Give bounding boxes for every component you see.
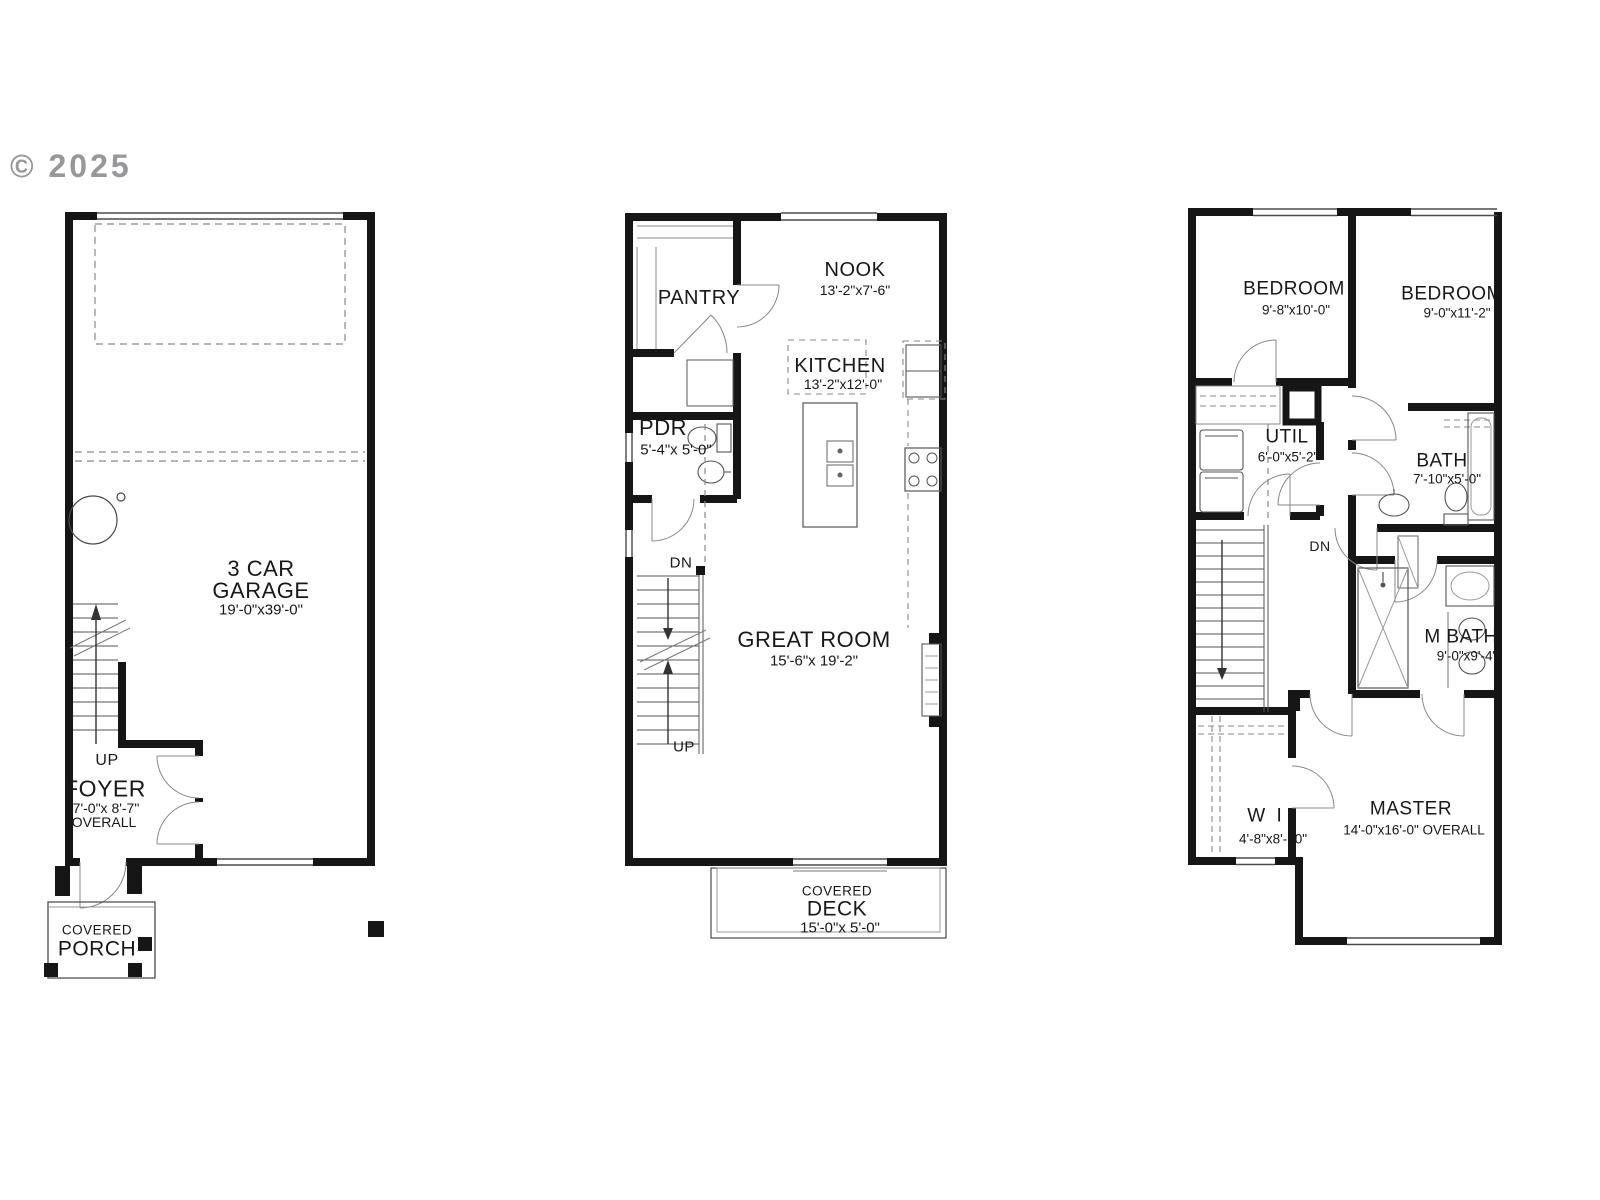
fireplace <box>922 633 945 727</box>
garage-door-header <box>97 213 343 865</box>
room-label-master: MASTER <box>1370 800 1452 819</box>
room-dims-mbath: 9'-0"x9'-4" <box>1437 649 1498 663</box>
deck-post <box>368 921 384 937</box>
stairs-dn-label-upper: DN <box>1309 539 1330 553</box>
room-label-kitchen: KITCHEN <box>794 356 885 376</box>
room-dims-bedroom1: 9'-8"x10'-0" <box>1262 303 1330 317</box>
room-label-garage-line2: GARAGE <box>212 580 309 602</box>
stairs-up-label-main: UP <box>673 740 695 755</box>
copyright-watermark: © 2025 <box>10 150 132 182</box>
room-label-bedroom1: BEDROOM <box>1243 280 1345 299</box>
room-label-porch-line1: COVERED <box>62 923 132 937</box>
room-dims-util: 6'-0"x5'-2" <box>1258 450 1319 464</box>
stairs-down <box>1196 424 1268 712</box>
room-label-bath: BATH <box>1416 452 1467 471</box>
room-label-nook: NOOK <box>825 260 886 280</box>
closet-cabinet <box>687 360 733 406</box>
main-outer-walls <box>629 217 943 862</box>
room-label-great-room: GREAT ROOM <box>737 629 890 651</box>
floor-plan-sheet: { "copyright": "© 2025", "floor1": { "ga… <box>0 0 1600 1200</box>
room-label-deck-line1: COVERED <box>802 884 872 898</box>
room-dims-foyer: 7'-0"x 8'-7" <box>73 801 140 815</box>
room-dims-deck: 15'-0"x 5'-0" <box>800 921 880 936</box>
room-label-util: UTIL <box>1265 428 1308 447</box>
stairs-up-label: UP <box>95 753 118 769</box>
room-label-pantry: PANTRY <box>658 288 740 308</box>
room-label-wi: W I <box>1247 807 1285 826</box>
stairs-dn-label-main: DN <box>670 556 693 571</box>
room-dims-wi: 4'-8"x8'-10" <box>1239 832 1307 846</box>
room-dims-foyer-overall: OVERALL <box>72 815 137 829</box>
garage-dashed-details <box>75 224 365 461</box>
room-label-porch-line2: PORCH <box>58 939 136 960</box>
linen-chase <box>1286 388 1318 422</box>
porch-post <box>128 963 142 977</box>
porch-post <box>138 937 152 951</box>
room-dims-bedroom2: 9'-0"x11'-2" <box>1423 306 1490 320</box>
room-dims-kitchen: 13'-2"x12'-0" <box>804 377 882 391</box>
room-dims-nook: 13'-2"x7'-6" <box>820 283 891 297</box>
room-label-pdr: PDR <box>639 417 687 439</box>
room-dims-master: 14'-0"x16'-0" OVERALL <box>1343 823 1485 837</box>
room-label-deck-line2: DECK <box>807 899 867 920</box>
room-label-foyer: FOYER <box>64 778 146 801</box>
main-level-plan <box>626 213 946 938</box>
room-dims-garage: 19'-0"x39'-0" <box>219 603 303 618</box>
porch-post <box>44 963 58 977</box>
room-label-garage-line1: 3 CAR <box>227 558 294 580</box>
main-stairs <box>637 424 710 754</box>
room-dims-bath: 7'-10"x5'-0" <box>1413 472 1481 486</box>
washer-dryer <box>1200 430 1243 512</box>
room-label-mbath: M BATH <box>1424 628 1497 647</box>
bedroom1-closet <box>1196 386 1280 424</box>
room-dims-pdr: 5'-4"x 5'-0" <box>640 443 711 458</box>
room-label-bedroom2: BEDROOM <box>1401 285 1503 304</box>
water-heater <box>69 493 125 544</box>
room-dims-great-room: 15'-6"x 19'-2" <box>770 654 858 669</box>
